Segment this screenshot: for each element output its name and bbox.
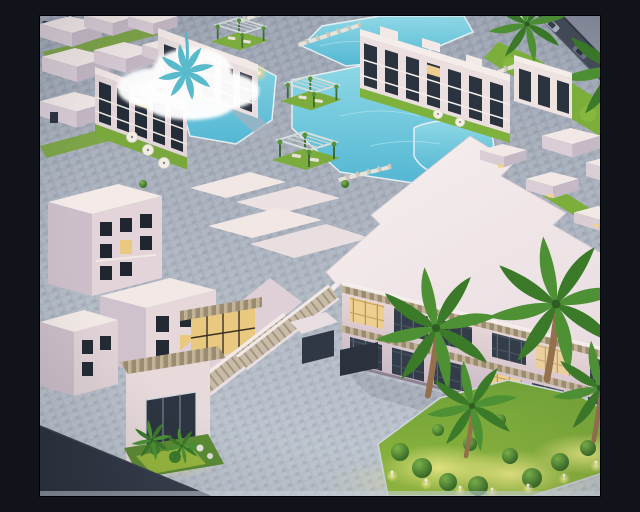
parasol [159,158,170,169]
parasol [143,145,154,156]
render-canvas [40,16,600,496]
parasol [455,117,464,126]
parasol [127,132,138,143]
resort-render [40,16,600,496]
ball-bush [139,180,147,188]
ball-bush [341,180,349,188]
bottom-light-strip [40,491,600,496]
parasol [433,109,442,118]
